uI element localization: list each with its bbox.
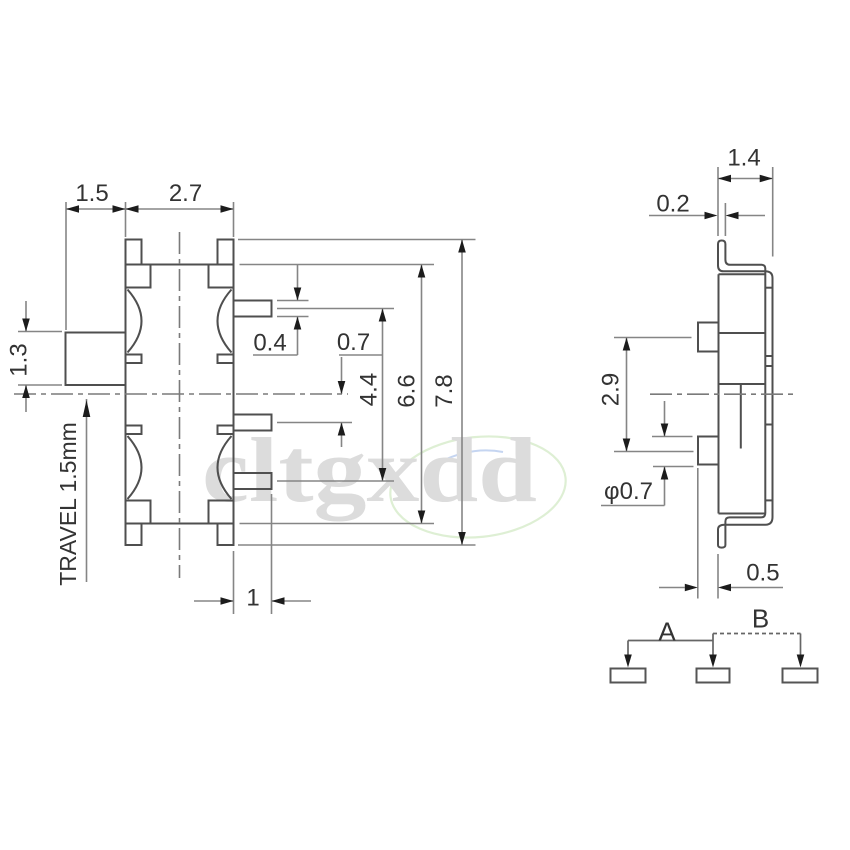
svg-text:2.7: 2.7 [169,180,202,207]
svg-text:1.4: 1.4 [727,145,760,172]
svg-text:0.2: 0.2 [656,191,689,218]
svg-text:0.4: 0.4 [253,330,286,357]
svg-text:1.5: 1.5 [75,180,108,207]
svg-text:7.8: 7.8 [431,374,458,407]
svg-text:0.5: 0.5 [746,560,779,587]
svg-text:1.3: 1.3 [6,343,33,376]
svg-text:4.4: 4.4 [356,373,383,406]
svg-text:A: A [658,617,676,647]
svg-text:2.9: 2.9 [598,373,625,406]
svg-text:cltgxdd: cltgxdd [202,419,537,521]
svg-text:φ0.7: φ0.7 [604,478,653,505]
svg-text:1: 1 [246,585,259,612]
svg-text:6.6: 6.6 [394,374,421,407]
svg-text:0.7: 0.7 [337,329,370,356]
svg-text:B: B [752,604,769,634]
svg-text:TRAVEL 1.5mm: TRAVEL 1.5mm [55,422,81,586]
